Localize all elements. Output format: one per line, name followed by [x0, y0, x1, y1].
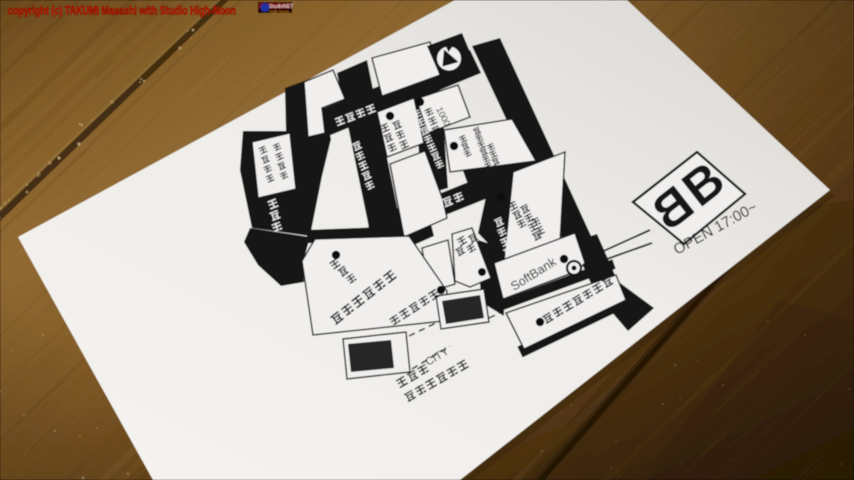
svg-text:copyright (c) TAKUMI Masashi w: copyright (c) TAKUMI Masashi with Studio… [8, 4, 236, 18]
svg-text:High-Noon: High-Noon [269, 9, 290, 14]
